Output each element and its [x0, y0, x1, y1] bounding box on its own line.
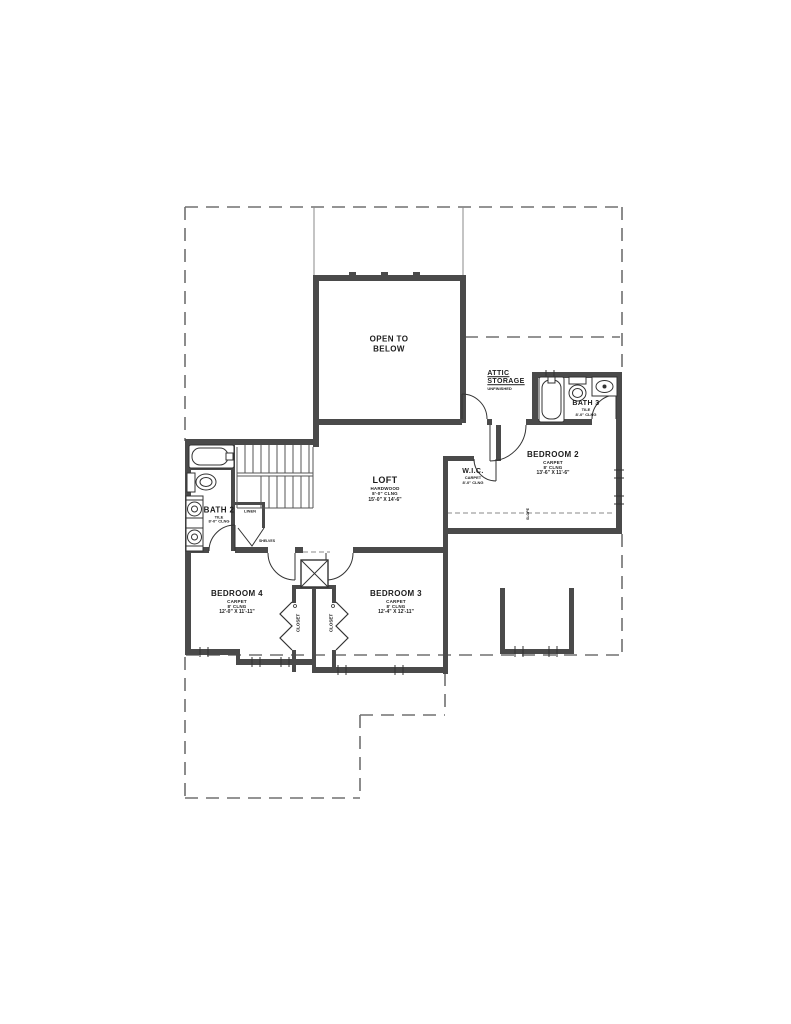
- roof-edge-lines: [314, 207, 463, 277]
- room-ceiling: 8'-0" CLNG: [368, 491, 401, 496]
- staircase: [237, 445, 313, 508]
- loft-label: LOFT HARDWOOD 8'-0" CLNG 15'-0" X 14'-6": [368, 475, 401, 503]
- wic-label: W.I.C. CARPET 8'-0" CLNG: [462, 468, 483, 486]
- floor-plan: OPEN TO BELOW ATTIC STORAGE UNFINISHED B…: [0, 0, 791, 1024]
- slope-note: SLOPE: [526, 508, 530, 520]
- room-name: BEDROOM 4: [211, 589, 263, 599]
- room-name: BEDROOM 3: [370, 589, 422, 599]
- open-to-below-label: OPEN TO BELOW: [370, 334, 409, 353]
- room-ceiling: 8'-0" CLNG: [204, 520, 235, 525]
- sink-icon: [186, 496, 203, 551]
- room-ceiling: 8'-0" CLNG: [462, 481, 483, 486]
- bedroom2-label: BEDROOM 2 CARPET 8' CLNG 13'-6" X 11'-6": [527, 450, 579, 476]
- closet-right-label: CLOSET: [329, 614, 334, 632]
- attic-storage-label: ATTIC STORAGE UNFINISHED: [487, 370, 524, 392]
- bathtub-icon: [539, 377, 564, 422]
- bedroom4-label: BEDROOM 4 CARPET 8' CLNG 12'-0" X 11'-11…: [211, 589, 263, 615]
- room-name: LOFT: [368, 475, 401, 486]
- bathtub-icon: [189, 445, 234, 468]
- room-name: ATTIC: [487, 370, 524, 378]
- toilet-icon: [187, 473, 216, 492]
- bath2-label: BATH 2 TILE 8'-0" CLNG: [204, 505, 235, 524]
- room-name: BELOW: [370, 344, 409, 354]
- room-size: 12'-4" X 12'-11": [370, 609, 422, 615]
- room-size: 12'-0" X 11'-11": [211, 609, 263, 615]
- room-ceiling: 8'-0" CLNG: [572, 413, 599, 418]
- room-size: 13'-6" X 11'-6": [527, 470, 579, 476]
- attic-access-icon: [301, 560, 328, 587]
- closet-left-label: CLOSET: [296, 614, 301, 632]
- bath3-label: BATH 3 TILE 8'-0" CLNG: [572, 400, 599, 418]
- room-note: UNFINISHED: [487, 387, 524, 392]
- floor-plan-drawing: [0, 0, 791, 1024]
- linen-note: SHELVES: [259, 539, 275, 543]
- room-size: 15'-0" X 14'-6": [368, 497, 401, 503]
- room-name: OPEN TO: [370, 334, 409, 344]
- room-name: BEDROOM 2: [527, 450, 579, 460]
- room-name: LINEN: [244, 510, 256, 515]
- sink-icon: [592, 377, 617, 396]
- toilet-icon: [569, 377, 586, 401]
- linen-label: LINEN: [244, 510, 256, 515]
- bedroom3-label: BEDROOM 3 CARPET 8' CLNG 12'-4" X 12'-11…: [370, 589, 422, 615]
